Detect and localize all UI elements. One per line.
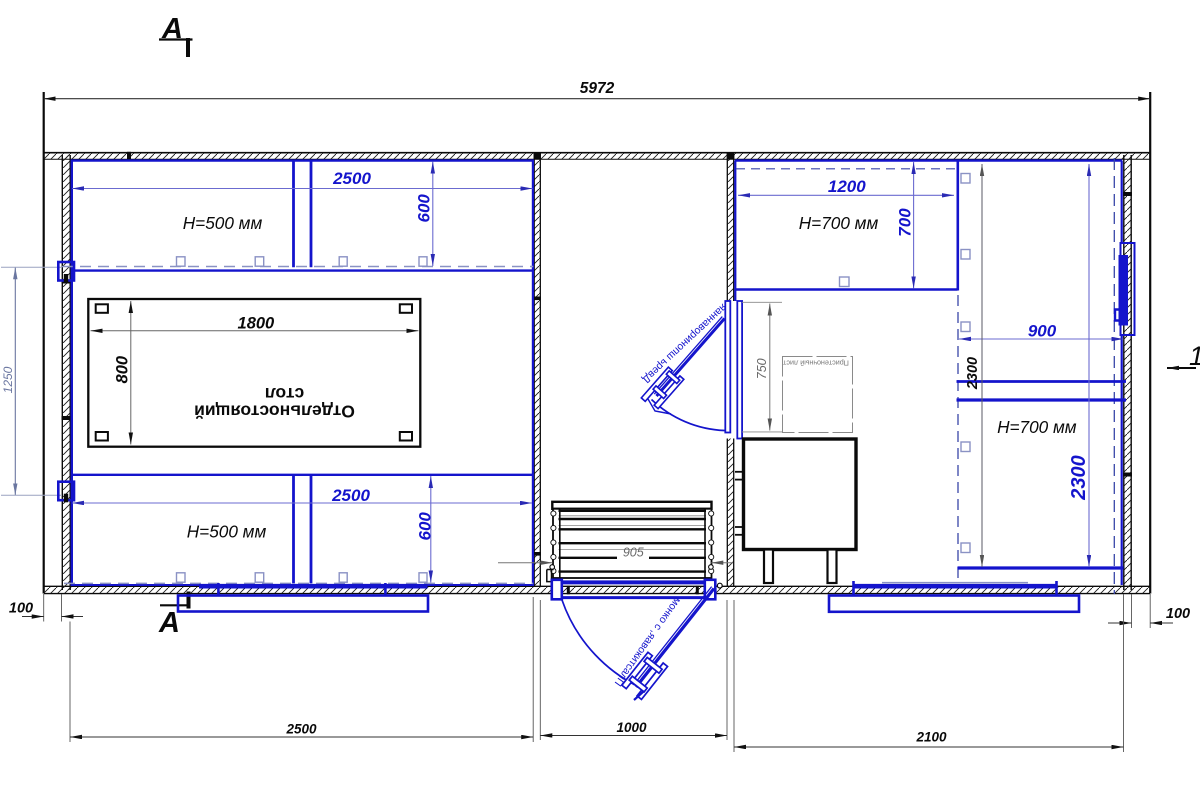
svg-text:600: 600	[415, 194, 434, 223]
svg-text:100: 100	[1166, 606, 1190, 622]
svg-text:1200: 1200	[828, 177, 866, 196]
svg-text:2100: 2100	[915, 730, 947, 745]
svg-text:Пристеночный лист: Пристеночный лист	[782, 359, 848, 368]
svg-text:700: 700	[896, 208, 915, 237]
svg-text:2500: 2500	[332, 169, 371, 188]
svg-text:600: 600	[416, 512, 435, 541]
svg-text:750: 750	[755, 358, 769, 379]
svg-text:H=700 мм: H=700 мм	[997, 417, 1077, 437]
svg-text:H=500 мм: H=500 мм	[187, 522, 267, 542]
svg-text:А: А	[158, 607, 180, 639]
svg-text:5972: 5972	[580, 80, 615, 97]
svg-text:1000: 1000	[616, 720, 647, 735]
svg-text:100: 100	[9, 601, 33, 617]
svg-text:1250: 1250	[1, 366, 15, 393]
svg-text:1800: 1800	[238, 315, 276, 333]
svg-text:2300: 2300	[1068, 455, 1090, 501]
svg-text:1: 1	[1189, 341, 1200, 371]
svg-text:H=700 мм: H=700 мм	[799, 213, 879, 233]
svg-text:900: 900	[1028, 322, 1057, 341]
svg-text:H=500 мм: H=500 мм	[183, 213, 263, 233]
svg-text:800: 800	[114, 355, 132, 383]
svg-text:2500: 2500	[285, 722, 317, 737]
svg-text:2500: 2500	[331, 486, 370, 505]
svg-text:905: 905	[623, 546, 644, 560]
svg-text:2300: 2300	[965, 357, 981, 390]
